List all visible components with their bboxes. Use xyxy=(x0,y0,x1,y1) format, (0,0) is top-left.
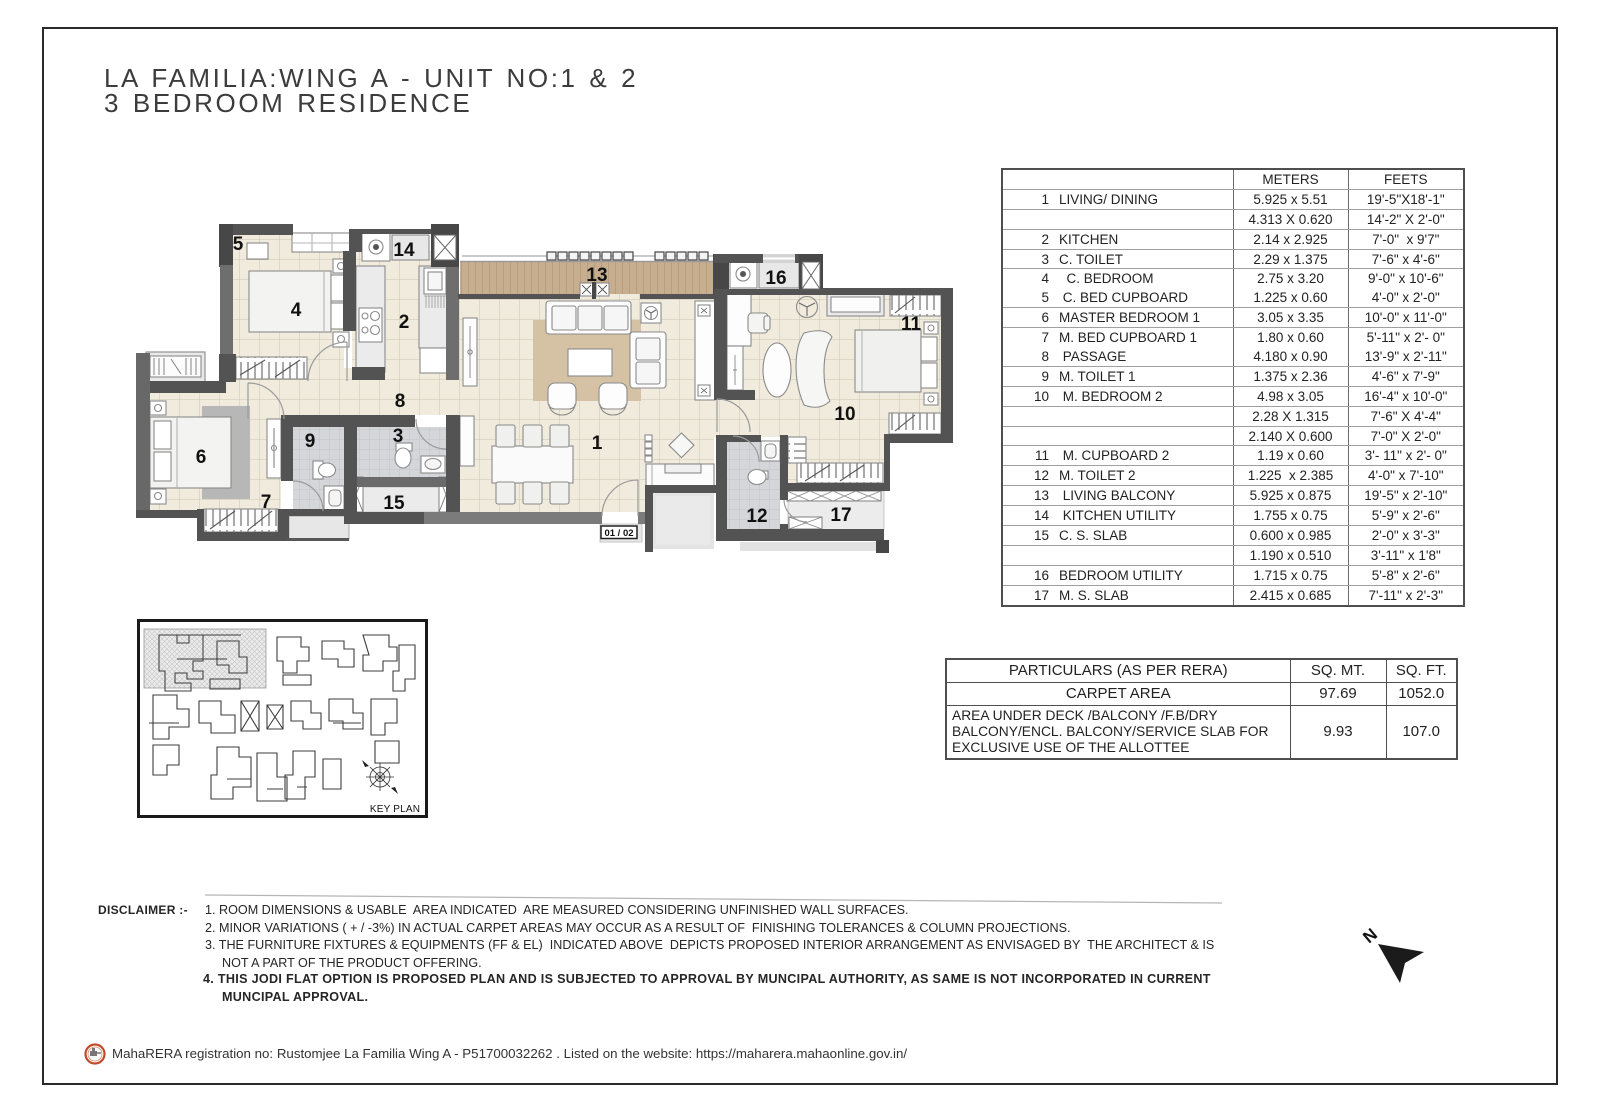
svg-text:KEY PLAN: KEY PLAN xyxy=(370,804,420,815)
svg-text:7: 7 xyxy=(261,492,272,513)
svg-text:3: 3 xyxy=(393,426,404,447)
svg-text:17: 17 xyxy=(830,505,851,526)
svg-text:4: 4 xyxy=(291,300,302,321)
svg-text:15: 15 xyxy=(383,493,405,514)
svg-text:10: 10 xyxy=(834,404,855,425)
svg-text:2: 2 xyxy=(399,312,410,333)
svg-text:13: 13 xyxy=(586,265,607,286)
svg-text:5: 5 xyxy=(233,234,244,255)
svg-text:9: 9 xyxy=(305,431,316,452)
svg-text:01 / 02: 01 / 02 xyxy=(604,528,633,539)
svg-text:6: 6 xyxy=(196,447,207,468)
svg-text:8: 8 xyxy=(395,391,406,412)
svg-text:1: 1 xyxy=(592,433,603,454)
svg-text:16: 16 xyxy=(765,268,786,289)
svg-text:12: 12 xyxy=(746,506,767,527)
svg-text:11: 11 xyxy=(901,314,922,335)
svg-text:14: 14 xyxy=(393,240,415,261)
